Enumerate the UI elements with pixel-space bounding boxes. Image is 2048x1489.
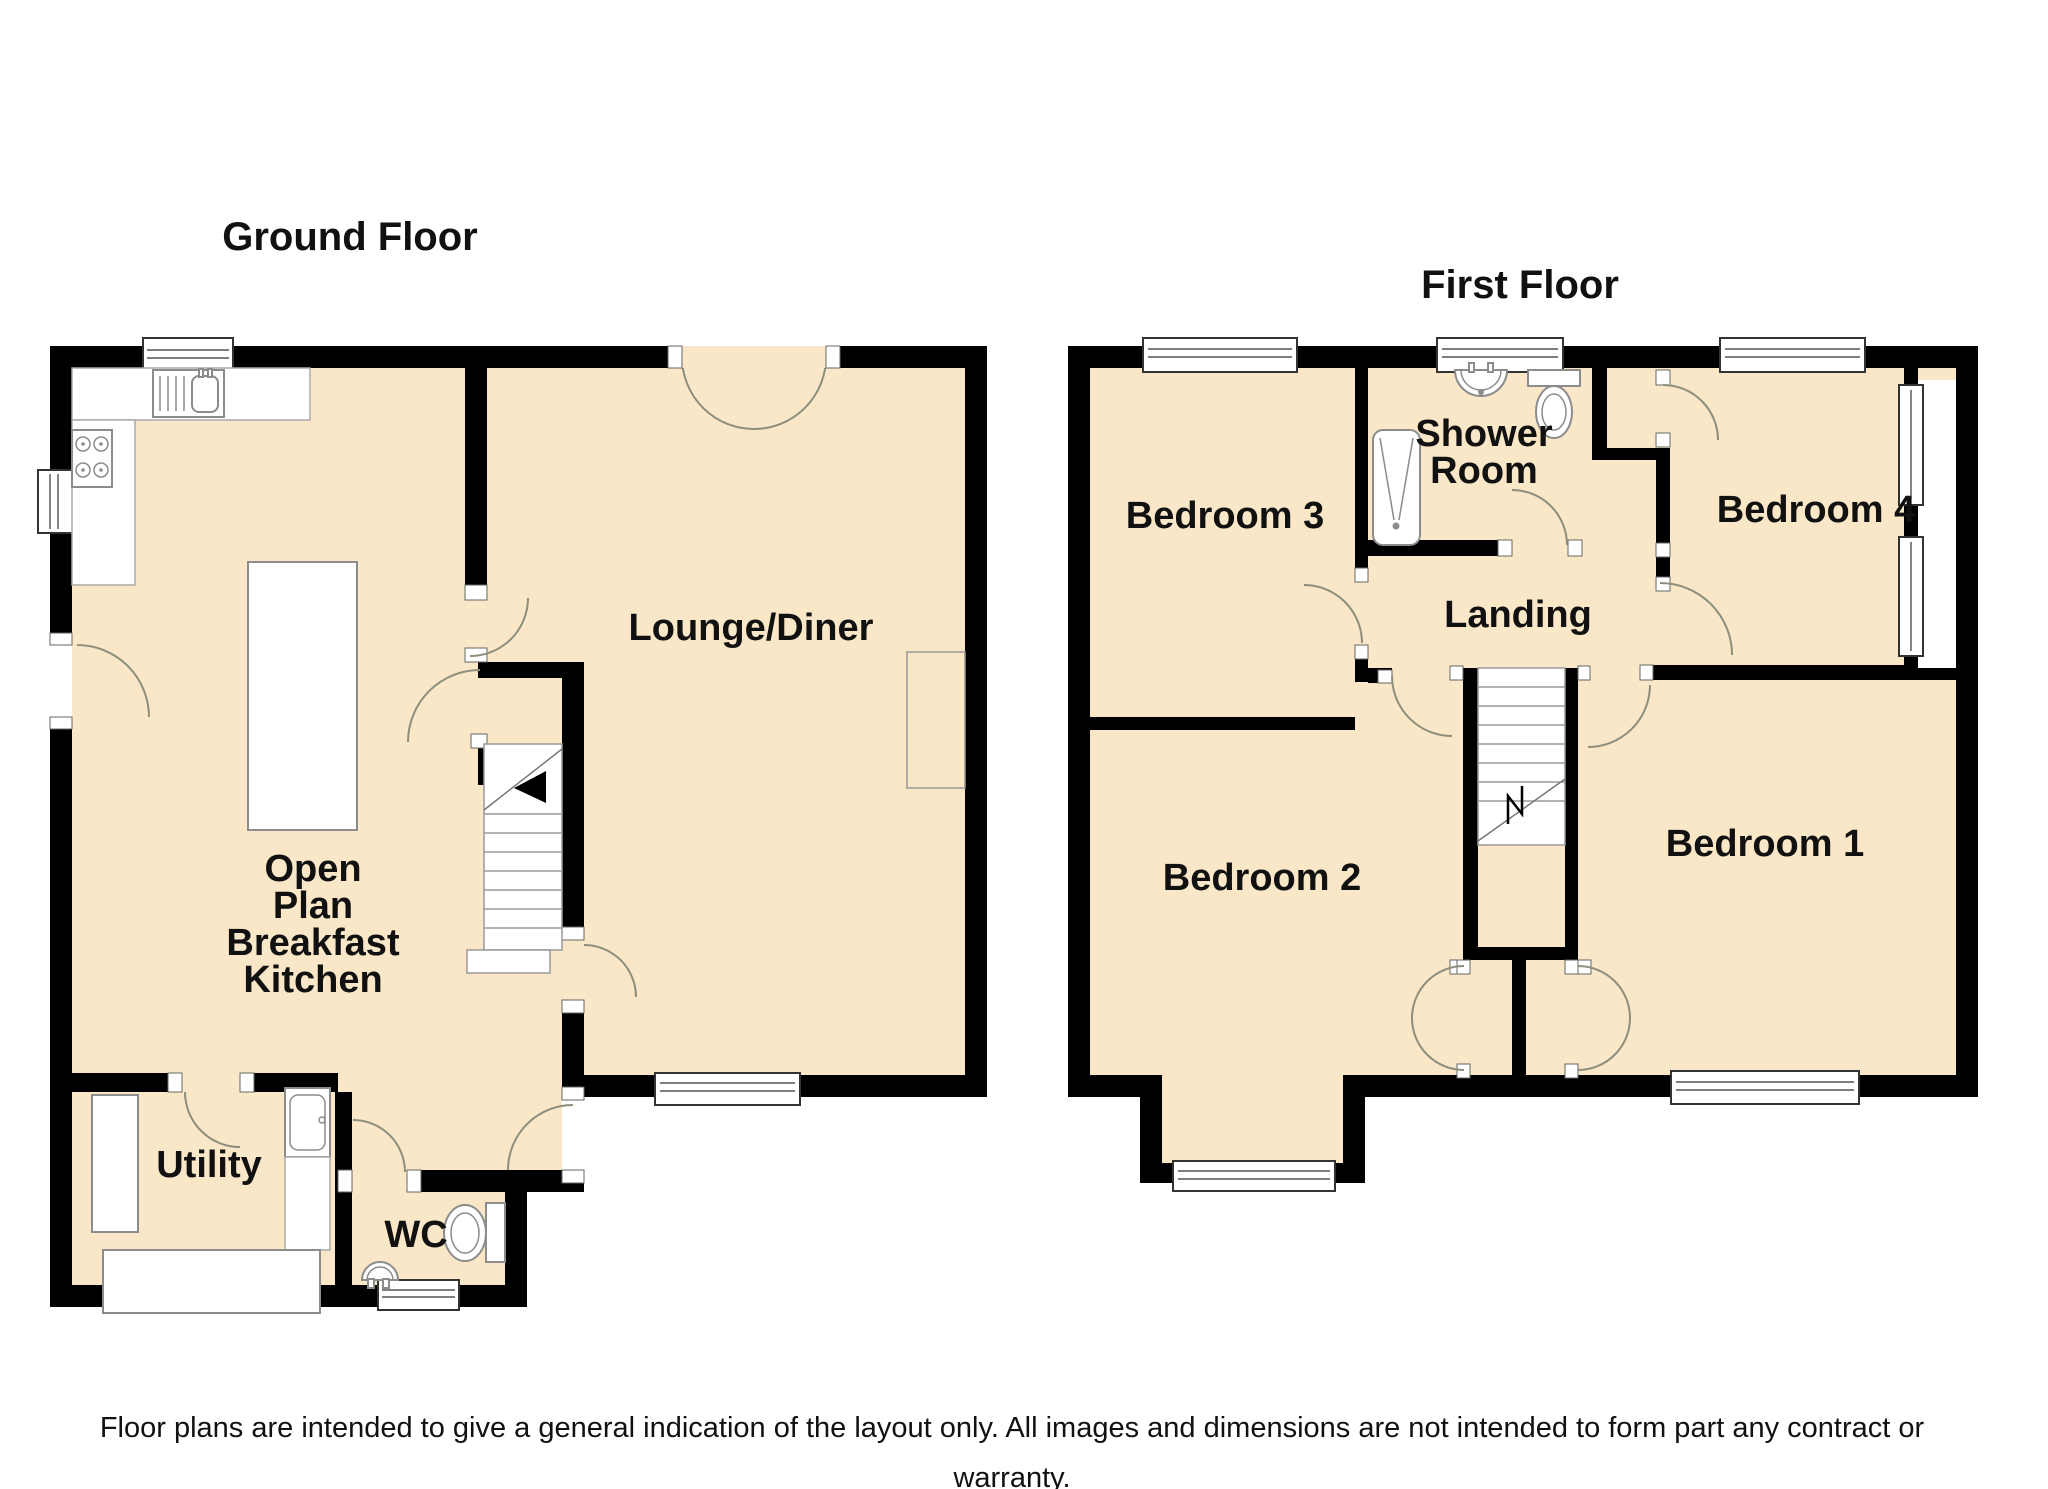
bedroom2-bay-floor <box>1151 1086 1354 1173</box>
french-door-opening <box>682 346 826 368</box>
wc-toilet <box>444 1203 505 1262</box>
ff-wardrobe-divider <box>1512 960 1526 1078</box>
ground-floor-plan: Ground Floor Lounge/Diner Open Plan Brea… <box>38 215 987 1313</box>
lounge-window <box>655 1073 800 1105</box>
floorplan-canvas: Ground Floor Lounge/Diner Open Plan Brea… <box>0 0 2048 1489</box>
utility-label: Utility <box>156 1144 262 1186</box>
bedroom1-label: Bedroom 1 <box>1666 823 1864 865</box>
wc-door-opening <box>352 1170 407 1192</box>
wall-right <box>965 346 987 1097</box>
ff-stairwell-right <box>1565 668 1578 960</box>
kitchen-island <box>248 562 357 830</box>
shower-room-window <box>1437 338 1563 372</box>
shower-label-line1: Shower <box>1415 413 1552 455</box>
ff-wall-bed3-bottom <box>1068 717 1355 730</box>
bedroom2-label: Bedroom 2 <box>1163 857 1361 899</box>
footer-disclaimer: Floor plans are intended to give a gener… <box>100 1412 1925 1489</box>
kitchen-hob <box>72 430 112 487</box>
lounge-door-opening <box>562 940 584 1000</box>
kitchen-label-line1: Open <box>264 848 361 890</box>
ff-wall-bottom <box>1343 1075 1978 1097</box>
ff-wall-bed3-divider <box>1355 368 1368 582</box>
wc-label: WC <box>384 1214 447 1256</box>
lounge-label: Lounge/Diner <box>629 607 874 649</box>
stairs-bottom-step <box>467 950 550 973</box>
kitchen-sink <box>153 369 224 417</box>
bedroom2-bay-window <box>1173 1161 1335 1191</box>
kitchen-side-window <box>38 470 76 533</box>
bedroom4-label: Bedroom 4 <box>1717 489 1915 531</box>
french-doors-notch <box>746 286 762 314</box>
wall-kitchen-lounge-divider <box>465 368 487 585</box>
ff-stairwell-left <box>1463 668 1478 960</box>
shower-door-opening <box>1512 540 1568 556</box>
utility-worktop <box>103 1250 320 1313</box>
disclaimer-line2: warranty. <box>952 1462 1070 1489</box>
side-door-opening <box>50 645 72 717</box>
stairs-first <box>1478 668 1565 845</box>
shower-tray <box>1373 430 1420 545</box>
kitchen-label-line2: Plan <box>273 885 353 927</box>
kitchen-lounge-floor <box>61 357 976 1086</box>
ff-wall-right <box>1956 346 1978 1097</box>
utility-door-opening <box>182 1073 240 1092</box>
landing-label: Landing <box>1444 594 1592 636</box>
ground-floor-title: Ground Floor <box>222 215 478 259</box>
utility-sink <box>285 1088 330 1157</box>
first-floor-title: First Floor <box>1421 263 1619 307</box>
front-door-opening <box>562 1100 584 1170</box>
first-floor-plan: First Floor Bedroom 3 Shower Room Bedroo… <box>1068 263 1978 1191</box>
disclaimer-line1: Floor plans are intended to give a gener… <box>100 1412 1925 1444</box>
shower-label-line2: Room <box>1430 450 1538 492</box>
bedroom3-label: Bedroom 3 <box>1126 495 1324 537</box>
ff-stairwell-bottom <box>1463 947 1578 960</box>
wall-wc-right <box>505 1170 527 1307</box>
bedroom4-window <box>1720 338 1865 372</box>
kitchen-label-line3: Breakfast <box>226 922 400 964</box>
utility-counter <box>285 1157 330 1250</box>
bedroom3-window <box>1143 338 1297 372</box>
chimney-breast <box>907 652 965 788</box>
utility-unit <box>92 1095 138 1232</box>
wc-window <box>378 1280 459 1310</box>
bedroom1-window <box>1671 1071 1859 1104</box>
kitchen-label-line4: Kitchen <box>243 959 382 1001</box>
